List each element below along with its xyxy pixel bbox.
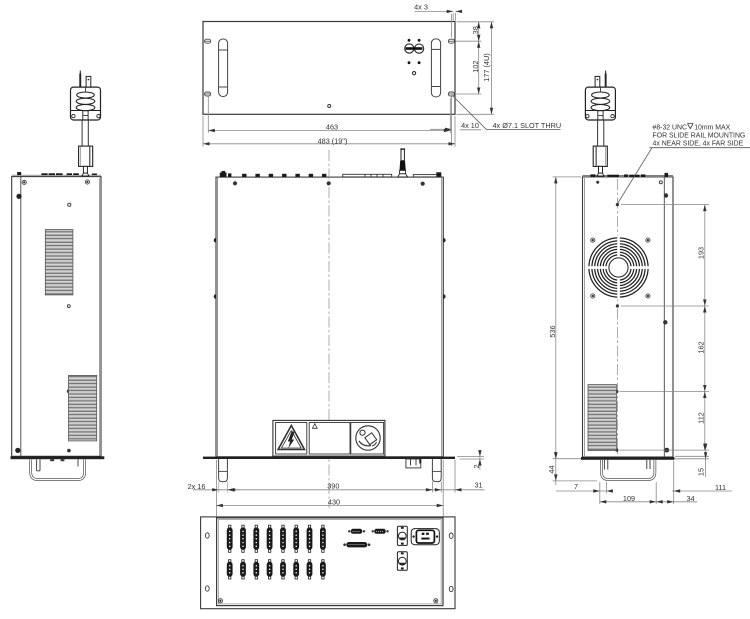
svg-text:7: 7 — [574, 482, 578, 491]
svg-text:#8-32 UNC: #8-32 UNC — [653, 125, 687, 132]
svg-text:FOR SLIDE RAIL MOUNTING: FOR SLIDE RAIL MOUNTING — [653, 133, 746, 140]
svg-text:162: 162 — [697, 341, 706, 353]
svg-text:109: 109 — [623, 494, 635, 503]
svg-text:44: 44 — [547, 465, 556, 473]
svg-text:4x 10: 4x 10 — [461, 121, 479, 130]
svg-text:4x 3: 4x 3 — [414, 3, 428, 12]
svg-text:10mm MAX: 10mm MAX — [694, 125, 730, 132]
svg-text:2x 16: 2x 16 — [188, 482, 206, 491]
svg-text:483 (19"): 483 (19") — [318, 136, 348, 145]
svg-text:390: 390 — [327, 482, 339, 491]
svg-text:34: 34 — [686, 494, 694, 503]
svg-text:112: 112 — [697, 412, 706, 424]
svg-text:430: 430 — [328, 497, 340, 506]
svg-text:536: 536 — [548, 325, 557, 337]
svg-text:31: 31 — [474, 480, 482, 489]
svg-text:4x NEAR SIDE, 4x FAR SIDE: 4x NEAR SIDE, 4x FAR SIDE — [653, 141, 744, 148]
svg-text:102: 102 — [471, 61, 480, 73]
svg-text:193: 193 — [697, 247, 706, 259]
svg-text:111: 111 — [715, 483, 726, 492]
svg-text:463: 463 — [326, 122, 338, 131]
svg-text:38: 38 — [471, 26, 480, 34]
svg-text:4x Ø7.1 SLOT THRU: 4x Ø7.1 SLOT THRU — [493, 121, 562, 130]
svg-text:2: 2 — [472, 464, 481, 468]
svg-text:15: 15 — [697, 468, 706, 476]
svg-text:177 (4U): 177 (4U) — [482, 53, 491, 81]
